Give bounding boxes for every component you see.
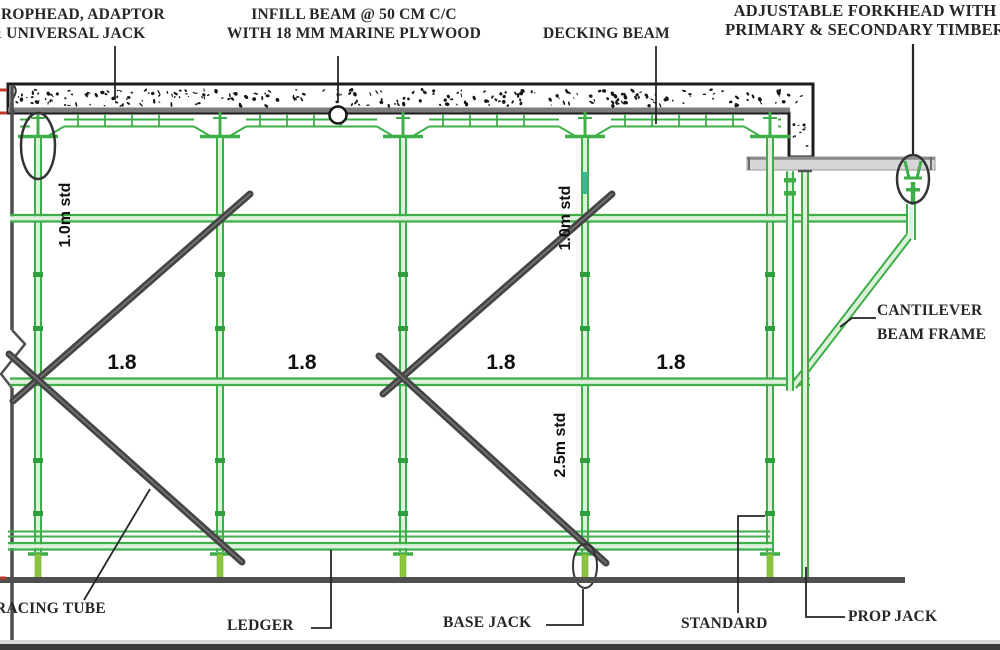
standard-assembly [383, 112, 423, 578]
joint-collar [398, 511, 408, 516]
upper-ledger [10, 215, 908, 222]
dim-bay-3: 1.8 [479, 351, 523, 375]
joint-collar [580, 458, 590, 463]
base-jack-stem [582, 554, 588, 578]
joint-collar [215, 326, 225, 331]
standards [18, 112, 790, 578]
joint-collar [215, 272, 225, 277]
label-forkhead-line1: ADJUSTABLE FORKHEAD WITH [712, 2, 1000, 20]
label-forkhead-line2: PRIMARY & SECONDARY TIMBER [712, 21, 1000, 39]
standard-assembly [200, 112, 240, 578]
dim-bay-4: 1.8 [649, 351, 693, 375]
label-infill-line2: WITH 18 MM MARINE PLYWOOD [222, 25, 486, 43]
base-jack-stem [767, 554, 773, 578]
scaffolding-section-drawing: ROPHEAD, ADAPTOR & UNIVERSAL JACK INFILL… [0, 0, 1000, 650]
base-jack-stem [217, 554, 223, 578]
joint-collar [765, 511, 775, 516]
dim-std-top-left: 1.0m std [57, 173, 75, 257]
label-decking-beam: DECKING BEAM [543, 25, 670, 43]
label-standard: STANDARD [681, 615, 768, 633]
label-prop-jack: PROP JACK [848, 608, 937, 626]
label-drophead-line1: ROPHEAD, ADAPTOR [1, 6, 165, 24]
leader-base-jack [546, 589, 583, 625]
label-drophead-line2: & UNIVERSAL JACK [0, 25, 146, 43]
joint-collar [215, 511, 225, 516]
joint-collar [398, 326, 408, 331]
label-ledger: LEDGER [227, 617, 294, 635]
leader-prop-jack [806, 567, 845, 617]
base-jack-stem [35, 554, 41, 578]
joint-collar [33, 326, 43, 331]
drawing-svg [0, 0, 1000, 650]
joint-collar [765, 458, 775, 463]
joint-collar [765, 326, 775, 331]
base-jack-stem [400, 554, 406, 578]
label-base-jack: BASE JACK [443, 614, 531, 632]
joint-collar [33, 511, 43, 516]
label-cantilever-line2: BEAM FRAME [877, 326, 986, 344]
joint-collar [580, 511, 590, 516]
infill-marker-circle [330, 107, 347, 124]
joint-collar [33, 458, 43, 463]
edge-ticks [0, 90, 7, 578]
joint-collar [765, 272, 775, 277]
joint-collar [398, 458, 408, 463]
label-bracing-tube: RACING TUBE [0, 600, 106, 618]
joint-collar [215, 458, 225, 463]
dim-std-bottom: 2.5m std [552, 403, 570, 487]
joint-collar [33, 272, 43, 277]
label-cantilever-line1: CANTILEVER [877, 302, 982, 320]
leader-ledger [311, 550, 331, 628]
bottom-strip-light [0, 640, 1000, 644]
joint-collar [580, 272, 590, 277]
dim-bay-2: 1.8 [280, 351, 324, 375]
dim-std-top-mid: 1.0m std [557, 176, 575, 260]
bottom-strip-dark [0, 644, 1000, 650]
joint-collar [580, 326, 590, 331]
joint-collar [398, 272, 408, 277]
label-infill-line1: INFILL BEAM @ 50 CM C/C [222, 6, 486, 24]
dim-bay-1: 1.8 [100, 351, 144, 375]
